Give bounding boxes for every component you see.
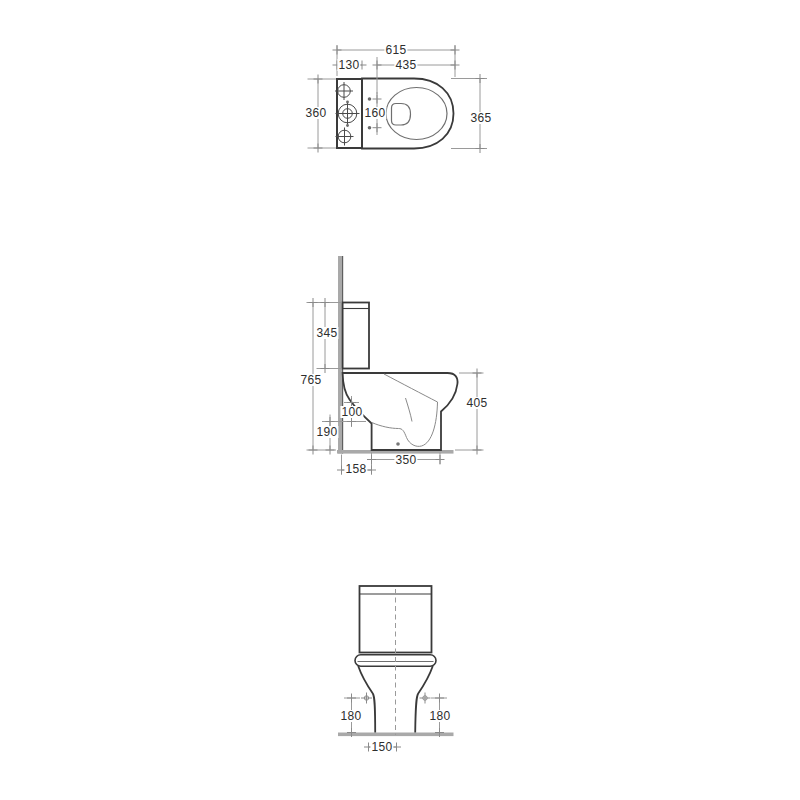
dim-bowl-projection: 435 bbox=[394, 59, 417, 71]
dim-inlet-offset: 100 bbox=[340, 406, 363, 418]
dim-outlet-height: 190 bbox=[315, 426, 338, 438]
dim-seat-fixing-centres: 160 bbox=[363, 107, 386, 119]
dim-cistern-width: 360 bbox=[304, 107, 327, 119]
drawing-linework bbox=[0, 0, 800, 800]
dim-cistern-height: 345 bbox=[315, 327, 338, 339]
plan-seat-fixing-hole bbox=[368, 126, 372, 130]
dim-bowl-width: 365 bbox=[469, 112, 492, 124]
side-outlet-dot bbox=[396, 442, 400, 446]
dim-fixing-height-right: 180 bbox=[428, 710, 451, 722]
side-cistern-outline bbox=[343, 303, 369, 369]
dim-overall-length: 615 bbox=[384, 44, 407, 56]
plan-seat-fixing-hole bbox=[368, 97, 372, 101]
technical-drawing-page: 615 130 435 360 160 365 345 765 405 100 … bbox=[0, 0, 800, 800]
dim-base-length: 350 bbox=[394, 454, 417, 466]
plan-view bbox=[335, 79, 454, 149]
dim-rim-height: 405 bbox=[465, 397, 488, 409]
dim-fixing-height-left: 180 bbox=[339, 710, 362, 722]
dim-base-width: 150 bbox=[370, 741, 393, 753]
dim-wall-setout: 158 bbox=[344, 463, 367, 475]
dim-cistern-depth: 130 bbox=[337, 59, 360, 71]
dim-overall-height: 765 bbox=[299, 374, 322, 386]
side-view bbox=[337, 256, 458, 454]
